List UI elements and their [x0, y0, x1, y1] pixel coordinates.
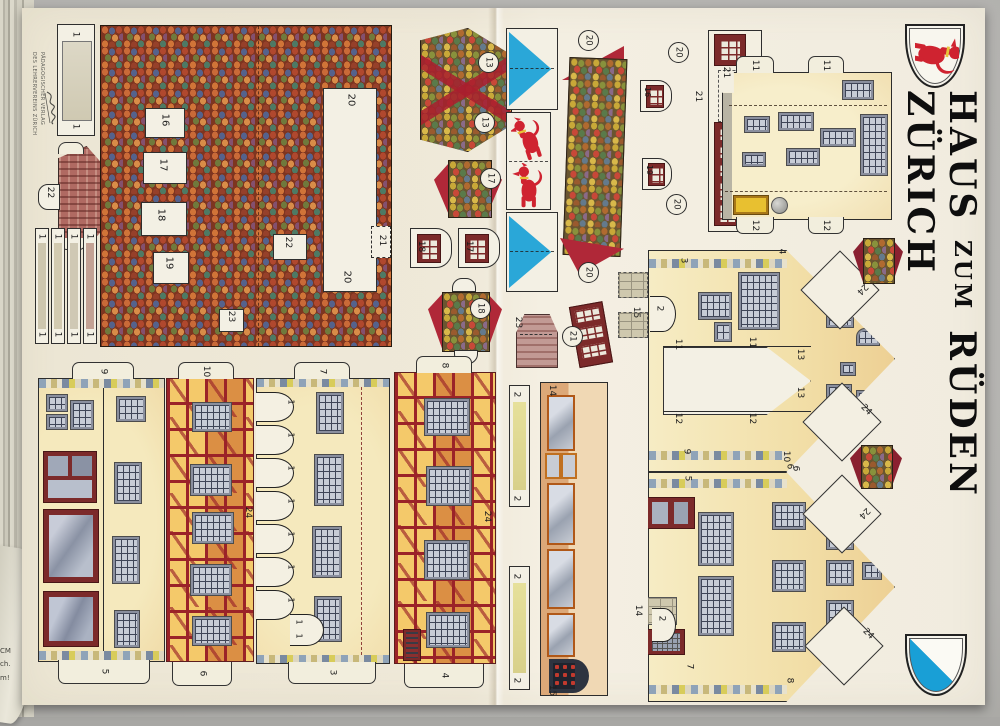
cutout-label-20: 20 — [341, 271, 351, 284]
dormer-roof-tiles — [861, 445, 893, 489]
fold-line — [520, 334, 552, 335]
tall-window-block — [861, 115, 887, 175]
tab-12: 12 — [808, 217, 844, 234]
flap-6: 6 — [172, 662, 232, 686]
shop-pane — [674, 502, 688, 524]
piece-label-7: 7 — [684, 664, 693, 670]
strip-piece — [51, 228, 65, 344]
piece-label-13: 13 — [795, 349, 804, 360]
pennant-triangle-icon — [509, 216, 555, 288]
pennant-piece — [506, 212, 558, 292]
window — [779, 113, 813, 130]
piece-label-18: 18 — [416, 241, 425, 252]
small-dormer-roof-piece — [853, 232, 905, 292]
piece-label-2: 2 — [656, 616, 665, 622]
piece-label-10: 10 — [781, 451, 790, 462]
small-dormer-roof-piece — [850, 440, 905, 496]
gallery-opening — [547, 483, 575, 545]
piece-label-4: 4 — [776, 249, 785, 255]
circle-tab-18: 18 — [470, 298, 491, 319]
cutout-label-23: 23 — [226, 311, 235, 322]
piece-label-1: 1 — [84, 234, 93, 240]
tab-11: 11 — [736, 56, 774, 73]
window — [47, 395, 67, 411]
piece-label-8: 8 — [784, 678, 793, 684]
window — [317, 393, 343, 433]
facade-piece-A — [38, 378, 165, 662]
strip-label-2: 2 — [511, 496, 520, 502]
strip-piece — [67, 228, 81, 344]
cutout-label-20: 20 — [345, 94, 355, 107]
piece-label-15: 15 — [631, 307, 640, 318]
piece-label-1: 1 — [70, 32, 79, 38]
shop-door — [403, 629, 421, 661]
arch-label-1: 1 — [287, 564, 295, 569]
roof-ridge-stripes — [421, 29, 511, 151]
gallery-opening — [547, 549, 575, 609]
fold-line — [509, 161, 548, 162]
strip-label-14: 14 — [547, 385, 556, 396]
edge-tabs — [39, 379, 164, 388]
photo-backdrop: CM ch. m! PÄDAGOGISCHER VERLAG DES LEHRE… — [0, 0, 1000, 717]
strip-tiles — [563, 57, 628, 257]
window — [71, 401, 93, 429]
arch-label-1: 1 — [287, 597, 295, 602]
flap-8: 8 — [416, 356, 472, 373]
piece-label-14: 14 — [633, 605, 642, 616]
piece-label-1: 1 — [52, 332, 61, 338]
arch-label-1: 1 — [287, 465, 295, 470]
piece-label-16: 16 — [643, 87, 651, 97]
circle-tab-17: 17 — [480, 168, 501, 189]
tab-12: 12 — [736, 217, 774, 234]
arcade-arch — [256, 557, 294, 587]
strip-piece — [83, 228, 97, 344]
window — [47, 415, 67, 429]
circle-tab-20: 20 — [666, 194, 687, 215]
circle-tab-20: 20 — [668, 42, 689, 63]
piece-label-22: 22 — [45, 187, 54, 198]
piece-label-2: 2 — [654, 306, 663, 312]
edge-tabs — [649, 451, 787, 460]
dormer-roof-piece-17 — [430, 152, 508, 232]
piece-label-1: 1 — [70, 124, 79, 130]
cut-line — [663, 346, 811, 347]
gallery-window — [561, 453, 577, 479]
hound-icon — [511, 115, 547, 161]
circle-tab-20: 20 — [578, 262, 599, 283]
shop-pane — [48, 480, 92, 498]
arcade-arch — [256, 458, 294, 488]
flap-10: 10 — [178, 362, 234, 379]
arcade-arch — [256, 392, 294, 422]
shop-display-window — [43, 591, 99, 647]
piece-label-1: 1 — [68, 234, 77, 240]
flap-3: 3 — [288, 662, 376, 684]
shop-window-frame — [647, 497, 695, 529]
arch-label-1: 1 — [287, 432, 295, 437]
facade-piece-B-fachwerk — [166, 378, 254, 662]
window — [113, 537, 139, 583]
window — [743, 153, 765, 166]
cutout-label-16: 16 — [159, 114, 169, 127]
window — [193, 513, 233, 543]
glue-strip-piece-2 — [509, 566, 530, 690]
flap-4: 4 — [404, 664, 484, 688]
edge-tabs — [257, 379, 389, 387]
window — [115, 611, 139, 647]
edge-tabs — [649, 685, 787, 694]
window — [425, 541, 469, 579]
arcade-arch — [650, 296, 676, 332]
piece-label-1: 1 — [36, 234, 45, 240]
strip-texture — [513, 583, 526, 673]
strip-texture — [62, 41, 92, 121]
roof-ridge-fold-line — [258, 26, 259, 346]
cutout-label-18: 18 — [155, 209, 165, 222]
tab-11: 11 — [808, 56, 844, 73]
window — [425, 399, 469, 435]
shop-pane — [652, 502, 668, 524]
strip-label-2: 2 — [511, 574, 520, 580]
window — [313, 527, 341, 577]
roof-cutout-20 — [323, 88, 377, 292]
cutout-label-22: 22 — [283, 237, 292, 248]
piece-label-12: 12 — [673, 413, 682, 424]
window — [715, 323, 731, 341]
large-window — [739, 273, 779, 329]
arch-label-1: 1 — [287, 498, 295, 503]
window — [193, 403, 231, 431]
tab — [58, 142, 84, 154]
piece-label-24: 24 — [482, 511, 491, 522]
edge-tabs — [649, 259, 787, 268]
shutter — [72, 456, 92, 476]
flap-5: 5 — [58, 660, 150, 684]
title-word: RÜDEN — [941, 330, 983, 498]
circle-tab-21: 21 — [562, 326, 583, 347]
window — [427, 467, 471, 505]
gallery-opening — [547, 613, 575, 657]
window — [699, 293, 731, 319]
dormer-roof-tiles — [863, 238, 895, 284]
pennant-triangle-icon — [509, 32, 555, 106]
window-cross — [581, 342, 607, 358]
window — [827, 561, 853, 585]
window — [699, 513, 733, 565]
window — [773, 561, 805, 591]
main-roof-panel-piece — [100, 25, 392, 347]
arch-label-1: 1 — [287, 531, 295, 536]
shutter — [48, 456, 68, 476]
round-relief — [771, 197, 788, 214]
circle-tab-20: 20 — [578, 30, 599, 51]
flap-7: 7 — [294, 362, 350, 379]
title-word: HAUS — [941, 90, 983, 221]
piece-label-1: 1 — [68, 332, 77, 338]
gallery-window — [545, 453, 561, 479]
tab — [452, 278, 476, 292]
piece-label-21: 21 — [721, 67, 730, 78]
piece-label-13: 13 — [795, 387, 804, 398]
piece-label-9: 9 — [681, 449, 690, 455]
window-cross — [575, 307, 601, 323]
piece-label-24: 24 — [243, 507, 252, 518]
dormer-roof-piece-18 — [426, 286, 506, 362]
display-glass — [49, 515, 93, 577]
glue-strip-piece-2 — [509, 385, 530, 507]
long-wall-piece — [722, 72, 892, 220]
window — [427, 613, 469, 647]
piece-label-12: 12 — [747, 413, 756, 424]
piece-label-23: 23 — [513, 317, 522, 328]
strip-texture — [54, 243, 62, 329]
arcade-arch — [256, 425, 294, 455]
gallery-strip-piece — [540, 382, 608, 696]
piece-label-3: 3 — [678, 258, 687, 264]
pennant-piece — [506, 28, 558, 110]
window — [115, 463, 141, 503]
fold-line — [729, 105, 887, 106]
piece-label-17: 17 — [464, 241, 473, 252]
arcade-arch — [652, 608, 676, 642]
piece-label-11: 11 — [673, 339, 682, 350]
arch-label-1: 1 — [287, 399, 295, 404]
fachwerk-fold-edge — [361, 387, 362, 655]
strip-texture — [513, 402, 526, 490]
window — [773, 623, 805, 651]
arcade-arch — [256, 491, 294, 521]
window — [191, 565, 231, 595]
window — [773, 503, 805, 529]
window-cross — [720, 40, 740, 60]
window — [841, 363, 855, 375]
window — [191, 465, 231, 495]
circle-tab-13: 13 — [478, 52, 499, 73]
title-word: ZÜRICH — [899, 90, 941, 275]
strip-label-2: 2 — [511, 392, 520, 398]
cutout-label-19: 19 — [163, 257, 173, 270]
fold-line — [725, 191, 887, 192]
circle-tab-13: 13 — [474, 112, 495, 133]
window — [787, 149, 819, 165]
piece-label-6: 6 — [784, 464, 793, 470]
window — [821, 129, 855, 146]
strip-label-2: 2 — [511, 678, 520, 684]
display-glass — [49, 597, 93, 641]
facade-piece-D-fachwerk — [394, 372, 496, 664]
arcade-arch — [256, 590, 294, 620]
piece-label-1: 1 — [52, 234, 61, 240]
flap-9: 9 — [72, 362, 134, 379]
hounds-plate-piece — [506, 112, 551, 210]
gold-ornament — [733, 195, 769, 215]
strip-texture — [70, 243, 78, 329]
stone-block-piece — [618, 272, 648, 298]
window — [745, 117, 769, 132]
edge-tabs — [649, 479, 787, 488]
piece-label-11: 11 — [747, 337, 756, 348]
cut-line — [663, 411, 811, 412]
imprint-line2: DES LEHRERVEREINS ZÜRICH — [31, 52, 37, 135]
fold-line — [510, 251, 554, 252]
wall-corner-band — [723, 93, 732, 219]
window — [193, 617, 231, 645]
arch-label-1: 1 — [295, 633, 303, 638]
window — [843, 81, 873, 99]
door-grid — [406, 632, 418, 658]
piece-label-1: 1 — [84, 332, 93, 338]
glue-strip-piece-1 — [57, 24, 95, 136]
piece-label-5: 5 — [682, 476, 691, 482]
piece-label-19: 19 — [645, 165, 653, 175]
strip-texture — [86, 243, 94, 329]
strip-piece — [35, 228, 49, 344]
edge-tabs — [39, 651, 164, 660]
tower-roof-strip-20 — [558, 30, 634, 292]
fold-line — [103, 388, 104, 651]
cutout-label-17: 17 — [157, 159, 167, 172]
cutout-label-21: 21 — [377, 235, 386, 246]
sheet-title: HAUS ZUM RÜDEN ZÜRICH — [899, 86, 983, 642]
hound-icon — [511, 163, 547, 209]
piece-label-1: 1 — [36, 332, 45, 338]
strip-texture — [38, 243, 46, 329]
fold-line — [510, 68, 554, 69]
title-word: ZUM — [949, 240, 976, 311]
arch-label-1: 1 — [295, 619, 303, 624]
window — [315, 455, 343, 505]
window — [117, 397, 145, 421]
piece-label-21: 21 — [693, 91, 702, 102]
arcade-arch — [256, 524, 294, 554]
shop-window-frame — [43, 451, 97, 503]
shop-display-window — [43, 509, 99, 583]
window — [699, 577, 733, 635]
gable-notch-cutout — [663, 347, 811, 415]
gallery-opening — [547, 395, 575, 451]
hound-icon — [915, 28, 959, 84]
strip-label-15: 15 — [547, 685, 556, 696]
